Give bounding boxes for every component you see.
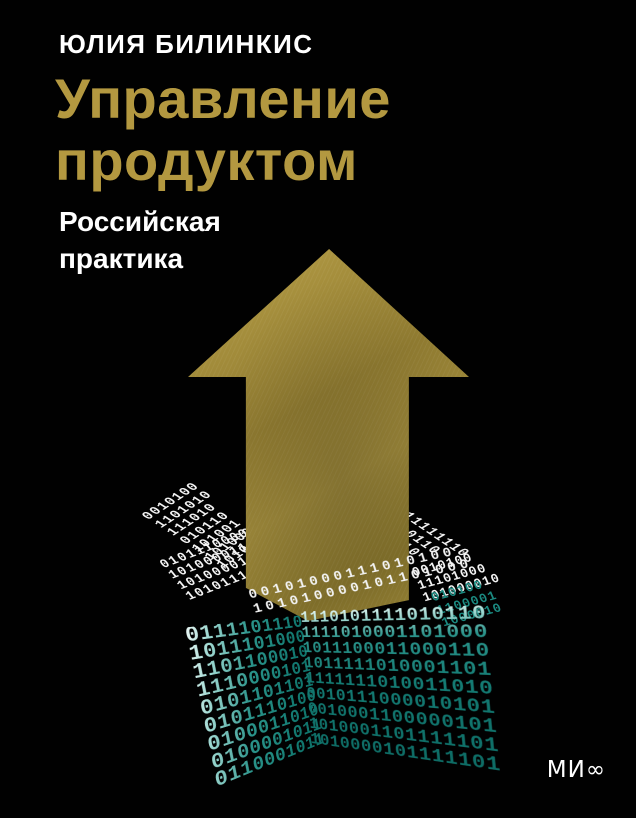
subtitle-line-2: практика xyxy=(59,240,221,277)
title-line-2: продуктом xyxy=(55,130,391,192)
title-line-1: Управление xyxy=(55,68,391,130)
subtitle-line-1: Российская xyxy=(59,203,221,240)
book-title: Управление продуктом xyxy=(55,68,391,192)
book-subtitle: Российская практика xyxy=(59,203,221,277)
book-cover: ЮЛИЯ БИЛИНКИС Управление продуктом Росси… xyxy=(0,0,636,818)
publisher-logo-mif: МИ∞ xyxy=(547,757,606,783)
box-front-face-binary: 1110101111010110 1111010001101000 101110… xyxy=(300,605,502,776)
author-name: ЮЛИЯ БИЛИНКИС xyxy=(59,31,314,57)
